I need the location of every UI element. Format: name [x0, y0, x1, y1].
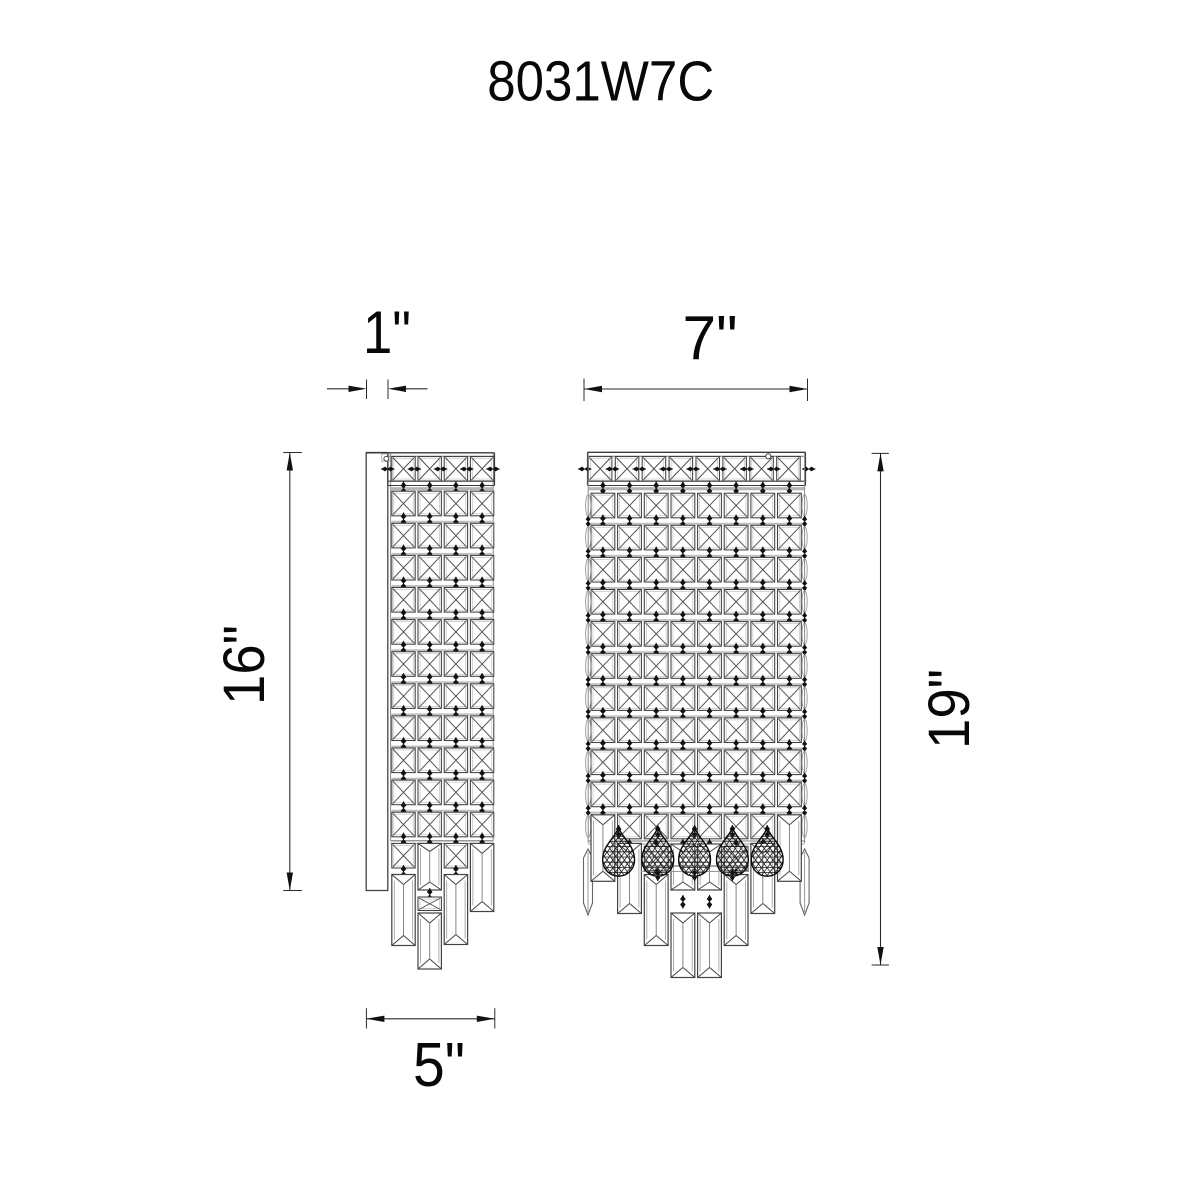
svg-text:19": 19" — [917, 669, 982, 749]
svg-text:16": 16" — [212, 625, 277, 705]
svg-text:8031W7C: 8031W7C — [487, 50, 714, 114]
svg-text:5": 5" — [413, 1031, 465, 1100]
svg-text:7": 7" — [683, 304, 738, 373]
svg-text:1": 1" — [363, 299, 411, 366]
